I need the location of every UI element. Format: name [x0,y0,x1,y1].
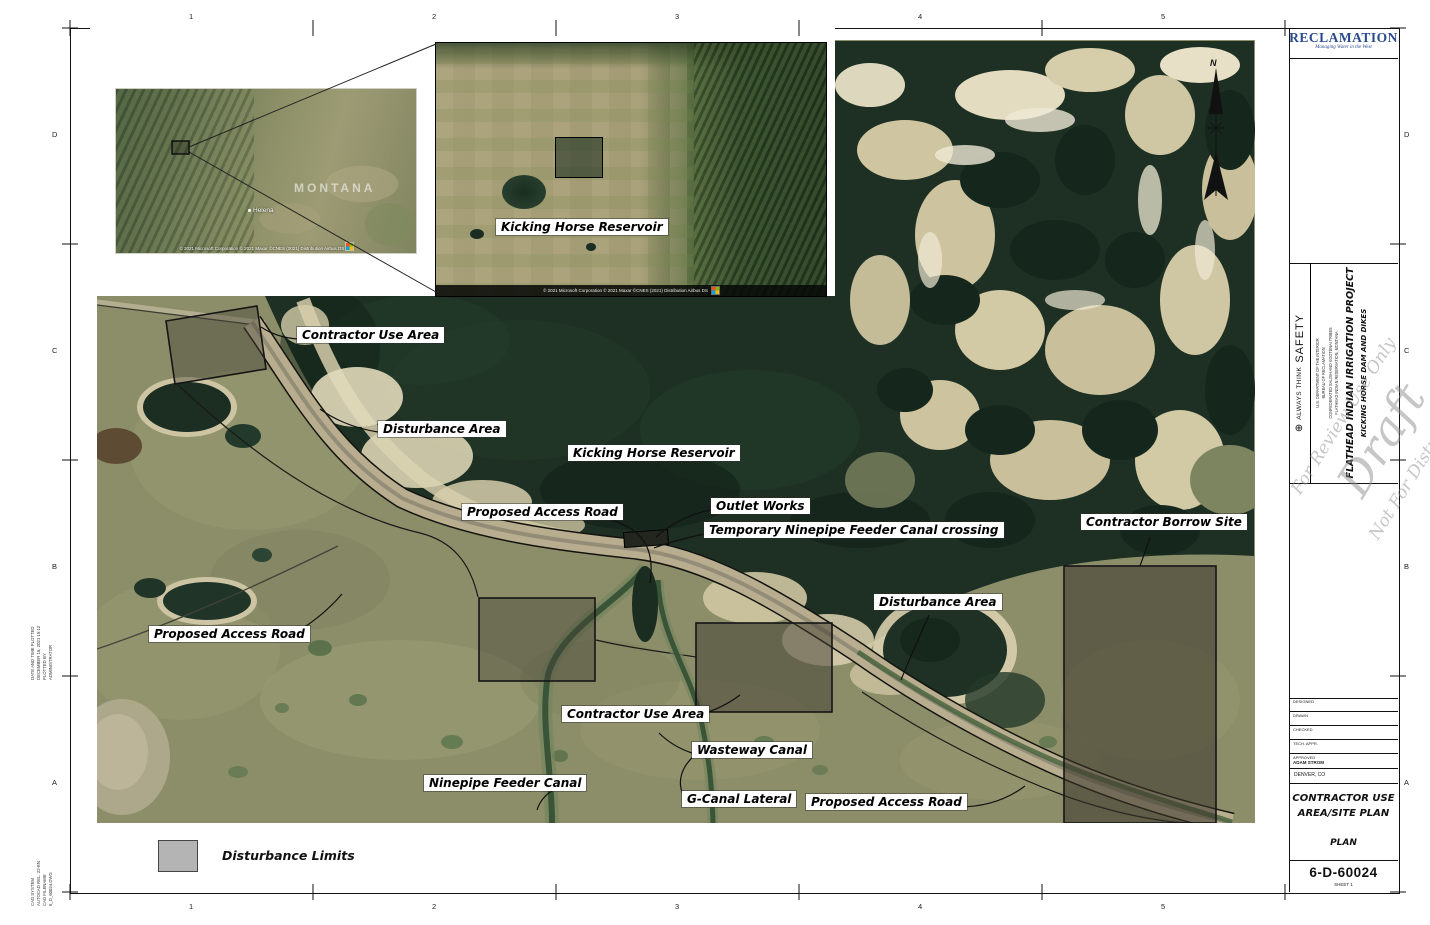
microsoft-logo-icon [346,243,353,250]
regional-inset: © 2021 Microsoft Corporation © 2021 Maxa… [435,42,827,297]
label-ninepipe-feeder-canal: Ninepipe Feeder Canal [424,775,586,791]
inset-reservoir-label: Kicking Horse Reservoir [496,219,668,235]
north-label: N [1210,58,1217,68]
mountain-texture [116,89,254,253]
plot-info-note: DATE AND TIME PLOTTED DECEMBER 16, 2021 … [30,568,54,680]
sheet-number: SHEET 1 [1289,882,1398,887]
mountain-ridge-texture [694,43,826,296]
city-label: Helena [248,207,274,214]
grid-row-b-r: B [1404,562,1409,571]
label-proposed-access-road-2: Proposed Access Road [149,626,310,642]
grid-col-4: 4 [918,12,922,21]
project-name: FLATHEAD INDIAN IRRIGATION PROJECT [1345,263,1356,483]
map-extent-box [555,137,603,178]
label-disturbance-area: Disturbance Area [378,421,506,437]
grid-col-2: 2 [432,12,436,21]
state-name-label: MONTANA [294,181,375,195]
drawing-number-box: 6-D-60024 SHEET 1 [1289,861,1398,892]
disturbance-limits-swatch [158,840,198,872]
pond [586,243,596,251]
grid-col-5b: 5 [1161,902,1165,911]
label-outlet-works: Outlet Works [711,498,810,514]
approval-row-designed: DESIGNED [1289,698,1398,712]
project-title-box: ⊕ ALWAYS THINK SAFETY U.S. DEPARTMENT OF… [1289,263,1398,483]
approval-row-checked: CHECKED [1289,726,1398,740]
drawing-title: CONTRACTOR USE AREA/SITE PLAN [1289,792,1398,821]
reclamation-logo: RECLAMATION Managing Water in the West [1289,28,1398,61]
label-kicking-horse-reservoir: Kicking Horse Reservoir [568,445,740,461]
label-g-canal-lateral: G-Canal Lateral [682,791,796,807]
cad-info-note: CAD SYSTEM AUTOCAD REL. 22-EN CAD FILENA… [30,794,54,906]
label-contractor-borrow-site: Contractor Borrow Site [1081,514,1247,530]
approval-row-approved: APPROVED ADAM STROM [1289,754,1398,769]
view-label: PLAN [1289,838,1398,848]
grid-col-1b: 1 [189,902,193,911]
safety-banner: ⊕ ALWAYS THINK SAFETY [1289,263,1311,483]
label-contractor-use-area-2: Contractor Use Area [562,706,709,722]
label-proposed-access-road-3: Proposed Access Road [806,794,967,810]
grid-row-d: D [52,130,57,139]
imagery-attribution: © 2021 Microsoft Corporation © 2021 Maxa… [436,285,826,296]
drawing-title-box: CONTRACTOR USE AREA/SITE PLAN PLAN [1289,784,1398,861]
lake [502,175,546,209]
office-location: DENVER, CO [1289,769,1398,784]
grid-col-5: 5 [1161,12,1165,21]
approval-row-tech-appr: TECH. APPR. [1289,740,1398,754]
grid-row-c-r: C [1404,346,1409,355]
label-contractor-use-area: Contractor Use Area [297,327,444,343]
agency-lines: U.S. DEPARTMENT OF THE INTERIOR BUREAU O… [1315,263,1340,483]
feature-name: KICKING HORSE DAM AND DIKES [1360,263,1368,483]
label-wasteway-canal: Wasteway Canal [692,742,812,758]
grid-col-4b: 4 [918,902,922,911]
city-dot-icon [248,209,251,212]
state-locator-inset: MONTANA Helena © 2021 Microsoft Corporat… [115,88,417,254]
approved-name: ADAM STROM [1293,760,1398,765]
label-disturbance-area-2: Disturbance Area [874,594,1002,610]
safety-label: SAFETY [1294,314,1306,363]
grid-row-a: A [52,778,57,787]
drawing-sheet: N MONTANA Helena © 2021 Microsoft Corpor… [0,0,1430,925]
imagery-attribution: © 2021 Microsoft Corporation © 2021 Maxa… [116,243,416,251]
reclamation-seal-icon: ⊕ [1295,424,1305,432]
legend-label: Disturbance Limits [222,848,355,863]
label-proposed-access-road: Proposed Access Road [462,504,623,520]
grid-row-a-r: A [1404,778,1409,787]
approval-row-drawn: DRAWN [1289,712,1398,726]
grid-col-3b: 3 [675,902,679,911]
logo-wordmark: RECLAMATION [1289,31,1398,45]
grid-col-2b: 2 [432,902,436,911]
drawing-number: 6-D-60024 [1289,865,1398,880]
grid-col-3: 3 [675,12,679,21]
stilling-basin [632,566,658,642]
grid-row-d-r: D [1404,130,1409,139]
label-temporary-canal-crossing: Temporary Ninepipe Feeder Canal crossing [704,522,1004,538]
pond [470,229,484,239]
grid-row-c: C [52,346,57,355]
microsoft-logo-icon [712,287,719,294]
always-think-label: ALWAYS THINK [1296,367,1303,420]
logo-tagline: Managing Water in the West [1289,45,1398,50]
grid-col-1: 1 [189,12,193,21]
plains-texture [236,138,416,253]
